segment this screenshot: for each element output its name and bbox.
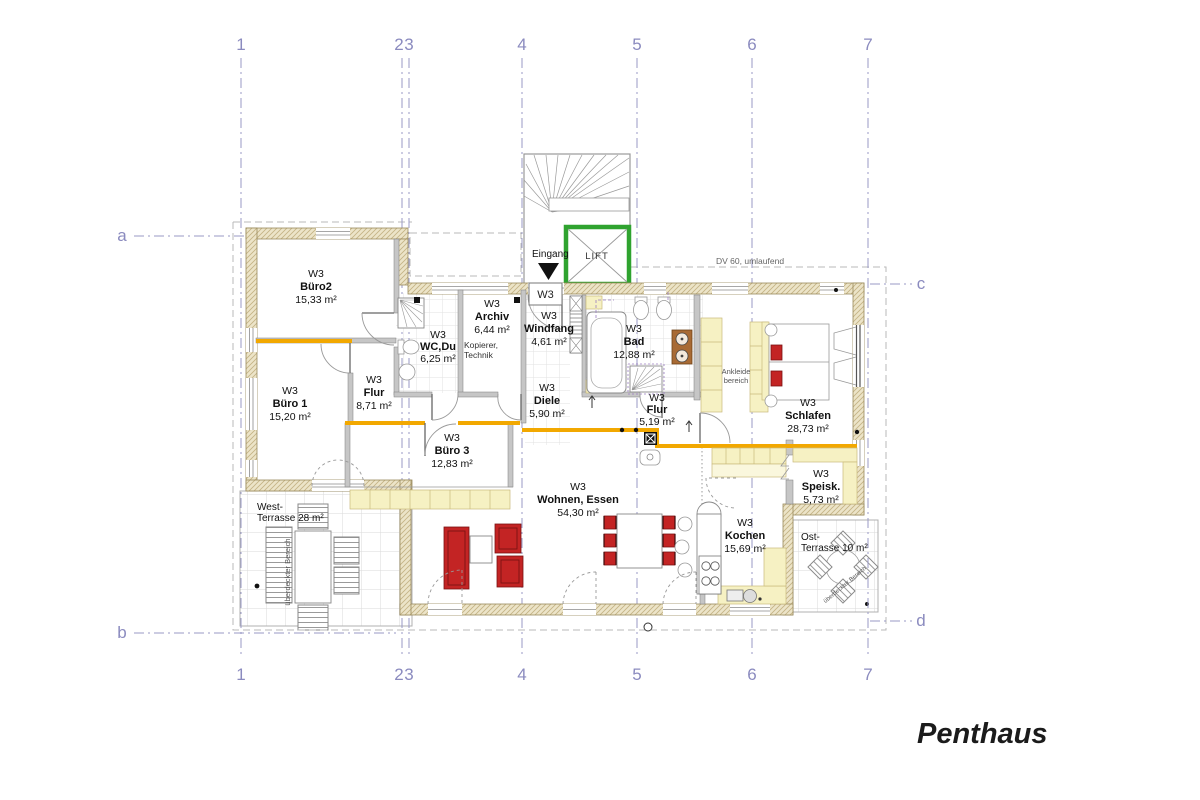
svg-text:W3: W3 (570, 481, 586, 493)
double-washbasin (672, 330, 692, 364)
svg-text:W3: W3 (541, 310, 557, 322)
svg-text:4,61 m²: 4,61 m² (531, 336, 567, 348)
svg-text:W3: W3 (282, 385, 298, 397)
sideboard (350, 490, 510, 509)
svg-text:5,73 m²: 5,73 m² (803, 494, 839, 506)
lift-label: LIFT (585, 251, 609, 262)
grid-col-label: 1 (236, 35, 245, 54)
nightstand (765, 395, 777, 407)
grid-col-label: 2 (394, 665, 403, 684)
svg-text:W3: W3 (737, 517, 753, 529)
terrace-chair (334, 567, 359, 594)
svg-text:8,71 m²: 8,71 m² (356, 400, 392, 412)
svg-text:15,33 m²: 15,33 m² (295, 294, 337, 306)
toilet (634, 297, 649, 320)
svg-text:Technik: Technik (464, 350, 494, 360)
window (820, 283, 844, 294)
stool (675, 540, 689, 554)
svg-text:6,44 m²: 6,44 m² (474, 324, 510, 336)
grid-col-label: 7 (863, 665, 872, 684)
unit-tag-label: W3 (537, 289, 554, 301)
window (730, 604, 770, 615)
cooktop (699, 556, 721, 594)
floorplan-drawing: 1 2 3 4 5 6 7 1 2 3 4 5 6 7 a b c d LIFT (0, 0, 1200, 800)
post (414, 297, 420, 303)
ankleide-label: Ankleide bereich (722, 367, 751, 385)
svg-text:Kopierer,: Kopierer, (464, 340, 498, 350)
svg-text:Wohnen, Essen: Wohnen, Essen (537, 494, 619, 506)
svg-text:Flur: Flur (647, 404, 668, 416)
svg-text:Archiv: Archiv (475, 311, 510, 323)
grid-col-label: 4 (517, 35, 526, 54)
svg-text:Bad: Bad (624, 336, 645, 348)
svg-text:Büro 3: Büro 3 (435, 445, 470, 457)
svg-text:Terrasse 10 m²: Terrasse 10 m² (801, 543, 868, 554)
survey-point (644, 623, 652, 631)
window (246, 460, 257, 477)
bidet (657, 297, 672, 320)
svg-text:Terrasse 28 m²: Terrasse 28 m² (257, 513, 324, 524)
coffee-table (470, 536, 492, 563)
svg-text:Büro2: Büro2 (300, 281, 332, 293)
svg-text:Kochen: Kochen (725, 530, 766, 542)
shower (398, 298, 424, 328)
svg-text:Diele: Diele (534, 395, 560, 407)
bath-shelf (586, 296, 602, 309)
post (514, 297, 520, 303)
svg-text:54,30 m²: 54,30 m² (557, 507, 599, 519)
grid-col-label: 3 (404, 665, 413, 684)
terrace-door (663, 604, 696, 615)
svg-text:Schlafen: Schlafen (785, 410, 831, 422)
wc-sink-icon (640, 450, 660, 465)
stair-landing (549, 198, 629, 211)
svg-text:überdeckter Bereich: überdeckter Bereich (283, 538, 292, 605)
svg-text:W3: W3 (308, 268, 324, 280)
svg-text:W3: W3 (484, 298, 500, 310)
grid-row-label: b (117, 623, 126, 642)
svg-text:bereich: bereich (724, 376, 749, 385)
svg-text:15,20 m²: 15,20 m² (269, 411, 311, 423)
grid-col-label: 5 (632, 35, 641, 54)
grid-row-label: d (916, 611, 925, 630)
svg-text:West-: West- (257, 502, 283, 513)
roof-note: DV 60, umlaufend (716, 256, 784, 266)
pillow (771, 345, 782, 360)
svg-text:6,25 m²: 6,25 m² (420, 353, 456, 365)
window (712, 283, 748, 294)
svg-text:W3: W3 (800, 397, 816, 409)
pillow (771, 371, 782, 386)
window (246, 328, 257, 352)
terrace-chair (298, 605, 328, 630)
french-door (312, 480, 364, 491)
svg-text:Ost-: Ost- (801, 532, 820, 543)
svg-text:5,19 m²: 5,19 m² (639, 416, 675, 428)
svg-text:Speisk.: Speisk. (802, 481, 841, 493)
stool (678, 563, 692, 577)
grid-col-label: 3 (404, 35, 413, 54)
svg-text:Windfang: Windfang (524, 323, 574, 335)
shower (628, 364, 664, 394)
nightstand (765, 324, 777, 336)
grid-col-label: 7 (863, 35, 872, 54)
toilet (398, 340, 419, 354)
svg-text:W3: W3 (430, 329, 446, 341)
grid-col-label: 6 (747, 35, 756, 54)
dining-table (617, 514, 662, 568)
svg-text:W3: W3 (813, 468, 829, 480)
grid-row-label: c (917, 274, 926, 293)
window (644, 283, 666, 294)
stool (678, 517, 692, 531)
lift: LIFT (566, 227, 629, 284)
terrace-table (295, 531, 331, 603)
window (316, 228, 350, 239)
svg-text:W3: W3 (366, 374, 382, 386)
floorplan-page: 1 2 3 4 5 6 7 1 2 3 4 5 6 7 a b c d LIFT (0, 0, 1200, 800)
svg-text:28,73 m²: 28,73 m² (787, 423, 829, 435)
washbasin (399, 364, 415, 380)
entrance-label: Eingang (532, 249, 569, 260)
svg-text:W3: W3 (539, 382, 555, 394)
entry-court-outline (410, 233, 521, 276)
wardrobe-column (701, 318, 722, 412)
svg-text:12,83 m²: 12,83 m² (431, 458, 473, 470)
terrace-door (563, 604, 596, 615)
svg-text:W3: W3 (444, 432, 460, 444)
svg-text:15,69 m²: 15,69 m² (724, 543, 766, 555)
terrace-chair (334, 537, 359, 564)
grid-col-label: 6 (747, 665, 756, 684)
svg-text:Büro 1: Büro 1 (273, 398, 308, 410)
svg-text:12,88 m²: 12,88 m² (613, 349, 655, 361)
svg-text:W3: W3 (626, 323, 642, 335)
svg-text:WC,Du: WC,Du (420, 341, 456, 353)
plan-title: Penthaus (917, 718, 1048, 750)
grid-col-label: 2 (394, 35, 403, 54)
svg-text:Ankleide: Ankleide (722, 367, 751, 376)
window (246, 378, 257, 430)
electric-box-icon (644, 432, 657, 445)
terrace-door (428, 604, 462, 615)
grid-col-label: 1 (236, 665, 245, 684)
grid-row-label: a (117, 226, 127, 245)
grid-col-label: 4 (517, 665, 526, 684)
window (432, 283, 508, 294)
svg-text:Flur: Flur (364, 387, 385, 399)
balcony-door (853, 325, 864, 387)
grid-col-label: 5 (632, 665, 641, 684)
svg-text:5,90 m²: 5,90 m² (529, 408, 565, 420)
svg-text:W3: W3 (649, 392, 665, 404)
